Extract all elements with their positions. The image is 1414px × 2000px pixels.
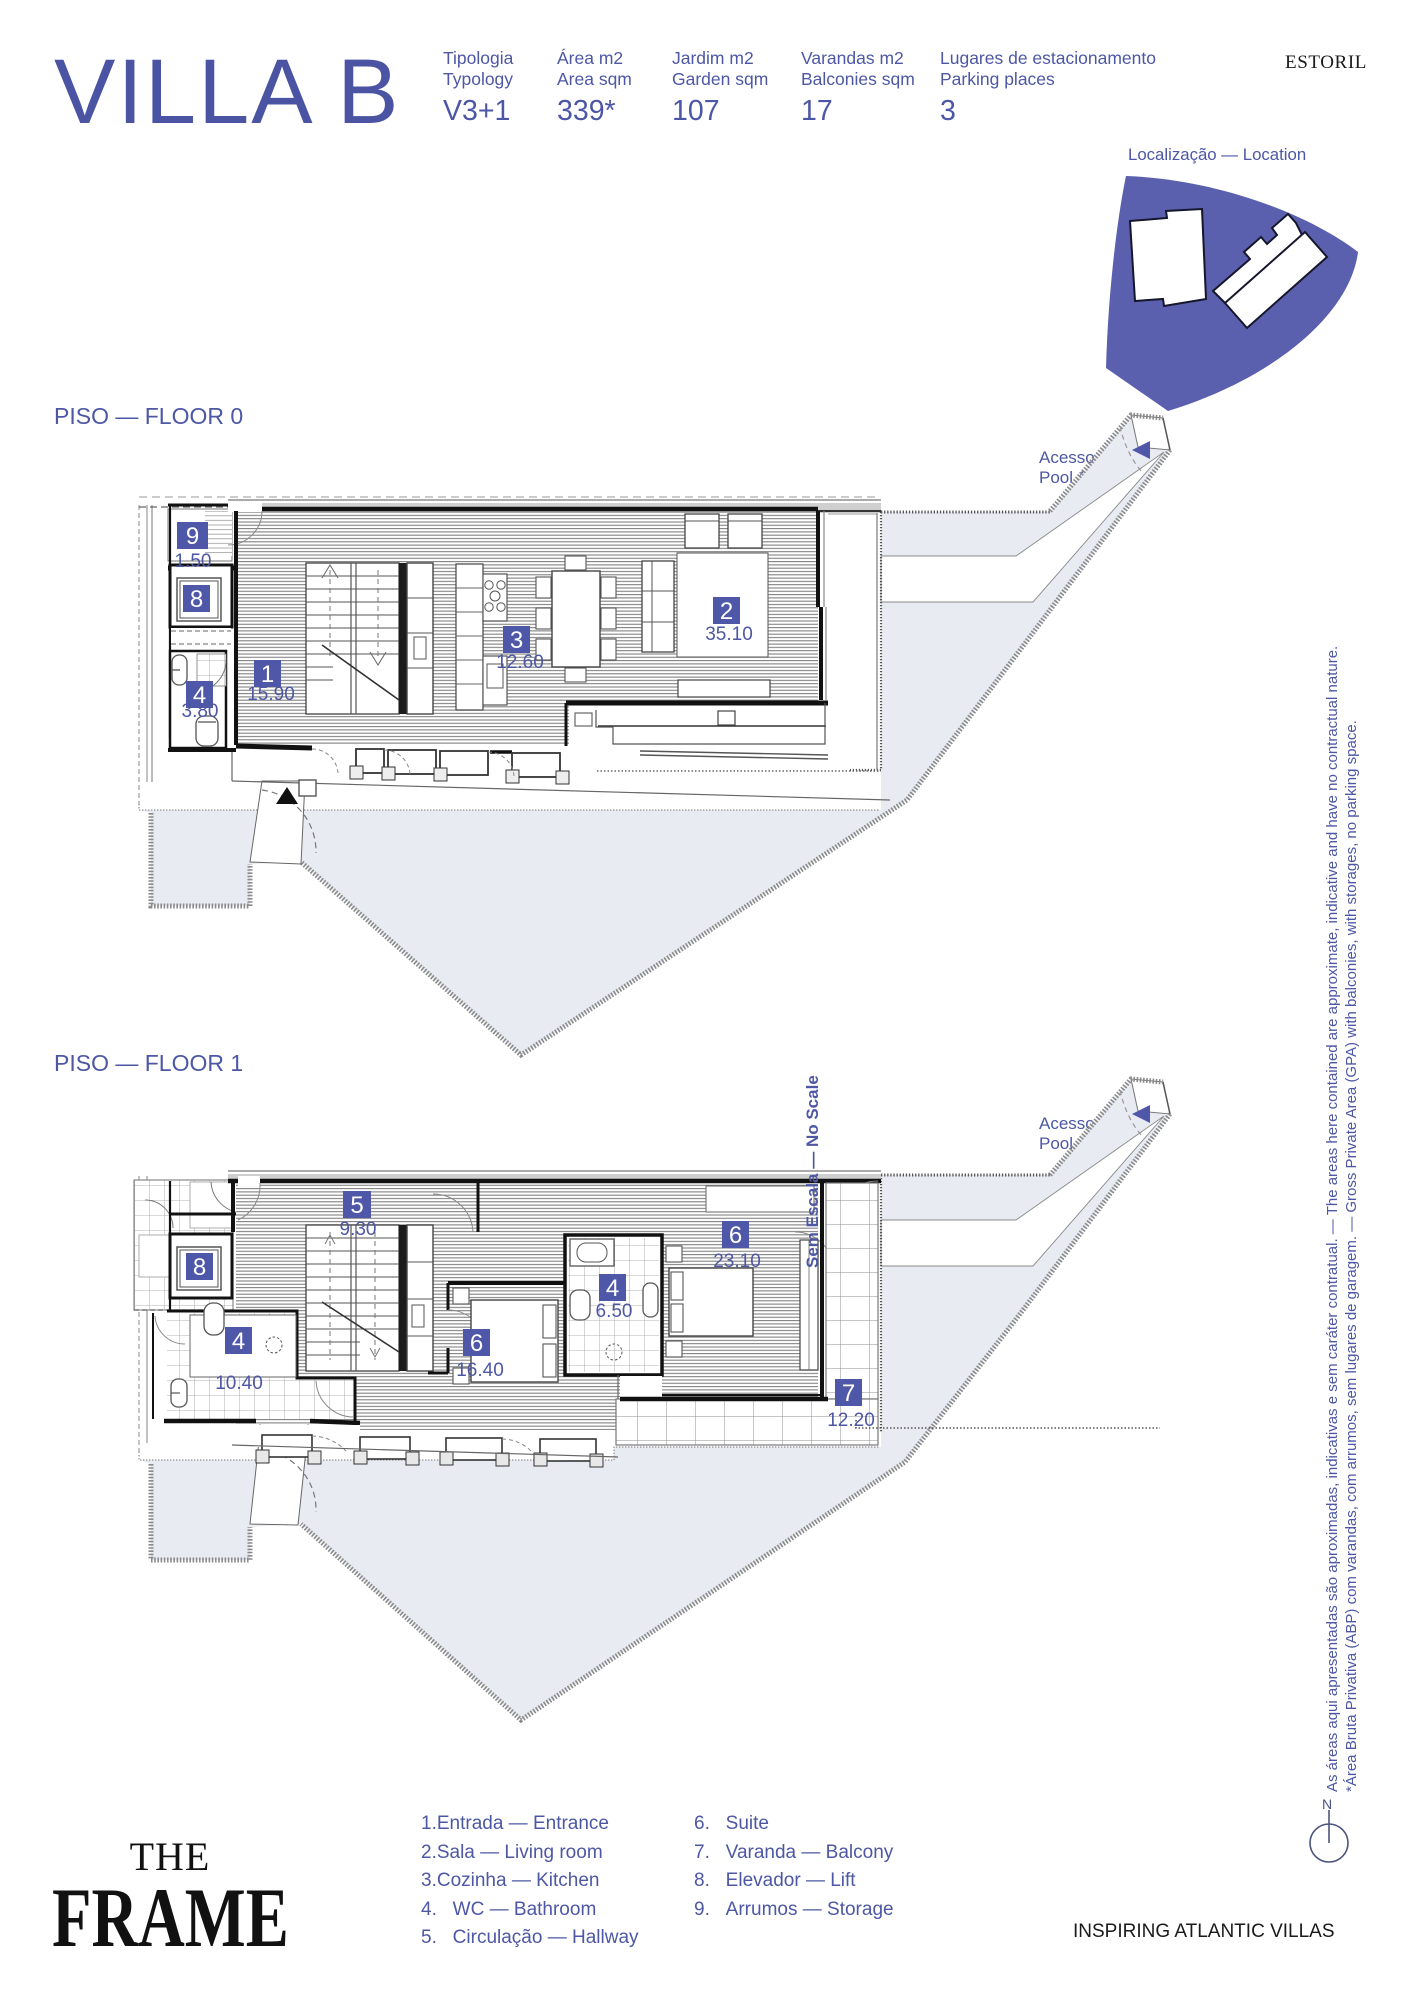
svg-text:35.10: 35.10 — [705, 624, 753, 645]
svg-text:9: 9 — [186, 523, 199, 550]
svg-text:6.50: 6.50 — [596, 1301, 633, 1322]
svg-text:9.30: 9.30 — [340, 1219, 377, 1240]
svg-text:8: 8 — [193, 1254, 206, 1281]
svg-text:7: 7 — [842, 1380, 855, 1407]
svg-text:5: 5 — [350, 1192, 363, 1219]
svg-text:4: 4 — [606, 1275, 619, 1302]
svg-text:1.50: 1.50 — [175, 551, 212, 572]
svg-text:3.80: 3.80 — [182, 701, 219, 722]
svg-text:6: 6 — [470, 1330, 483, 1357]
svg-text:N: N — [1322, 1796, 1332, 1812]
svg-text:16.40: 16.40 — [456, 1360, 504, 1381]
svg-text:12.20: 12.20 — [827, 1410, 875, 1431]
svg-text:10.40: 10.40 — [215, 1373, 263, 1394]
svg-text:8: 8 — [190, 586, 203, 613]
svg-text:12.60: 12.60 — [496, 652, 544, 673]
svg-text:6: 6 — [729, 1222, 742, 1249]
svg-text:4: 4 — [232, 1328, 245, 1355]
svg-text:2: 2 — [720, 598, 733, 625]
svg-text:23.10: 23.10 — [713, 1251, 761, 1272]
svg-text:15.90: 15.90 — [247, 684, 295, 705]
svg-text:3: 3 — [510, 627, 523, 654]
